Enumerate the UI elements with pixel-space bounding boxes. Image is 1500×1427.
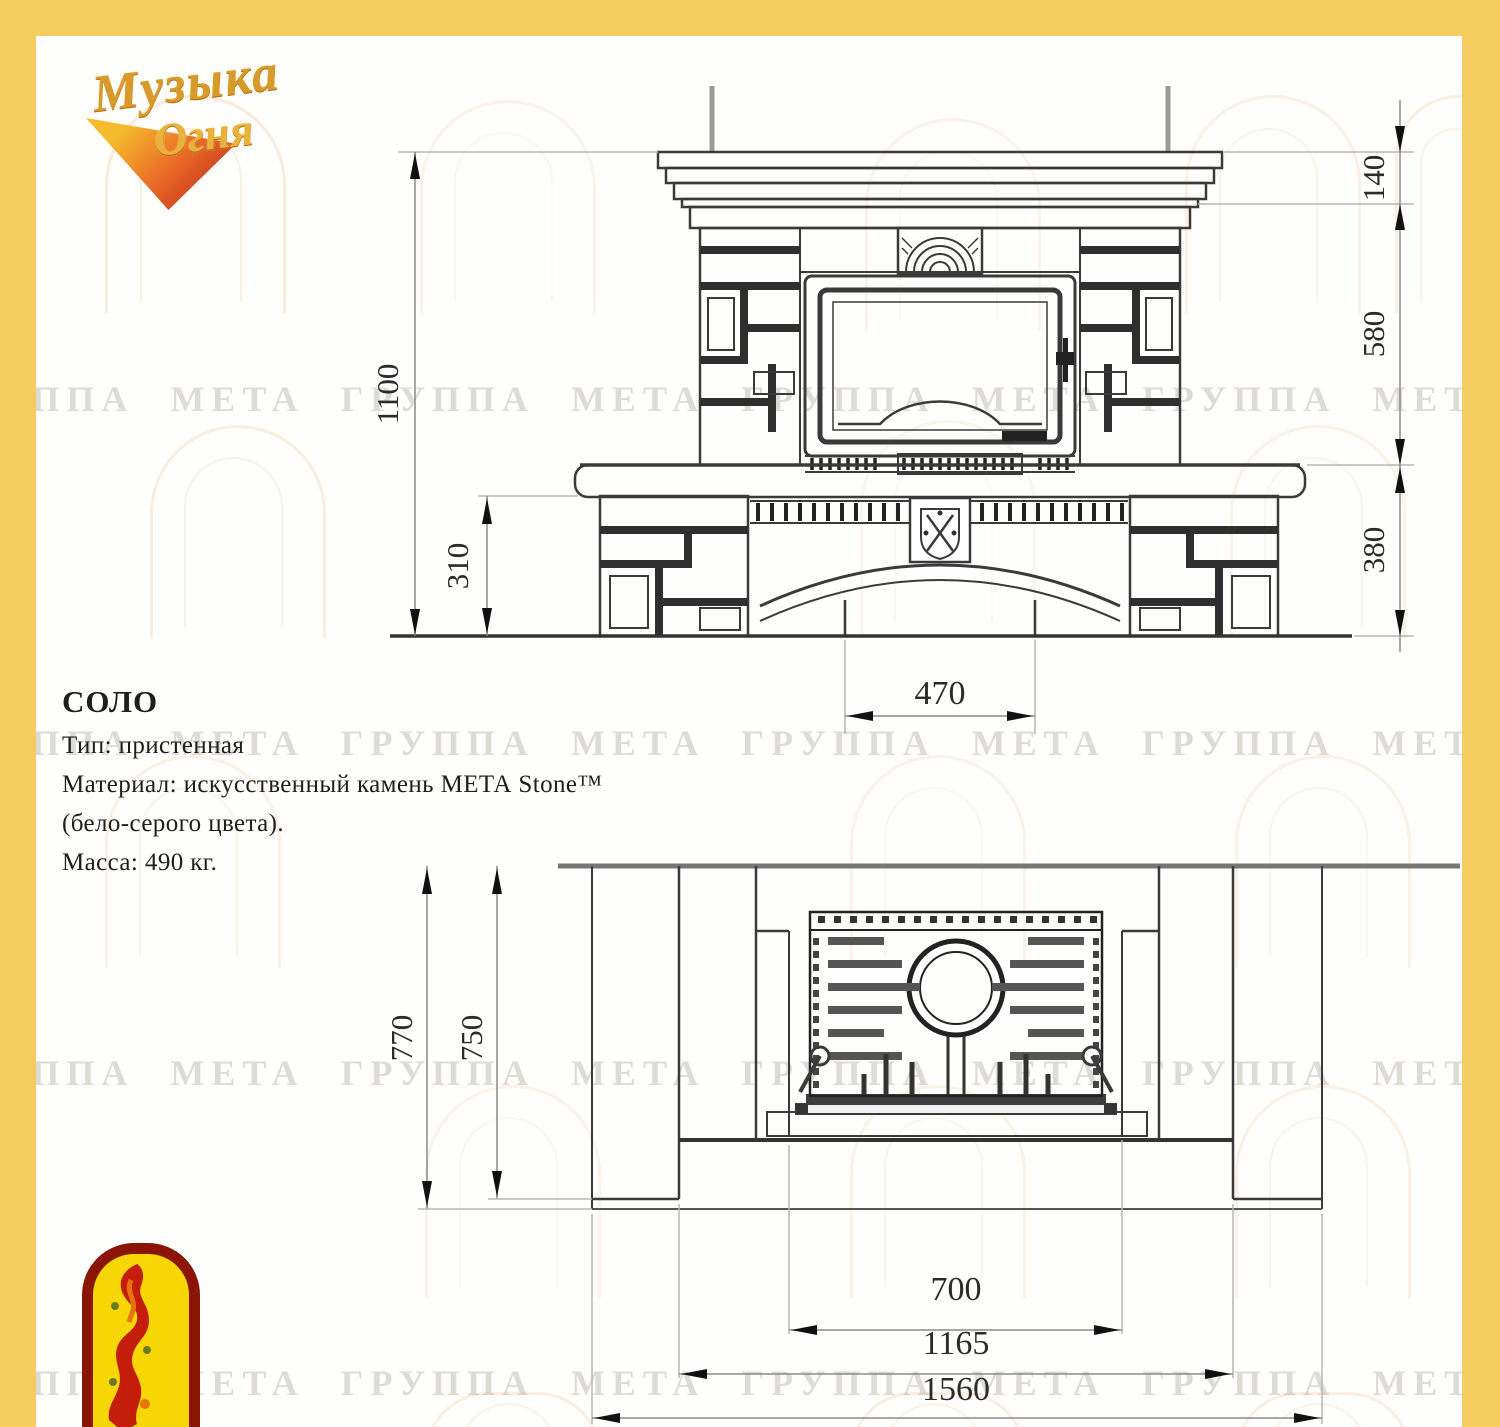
pilaster-right [1080, 246, 1180, 432]
dim-label-front-opening: 470 [915, 675, 966, 712]
spec-type: Тип: пристенная [62, 732, 602, 760]
insert-ribs [828, 937, 1084, 1060]
dim-label-base: 380 [1356, 527, 1391, 574]
dim-label-bench-depth: 750 [454, 1015, 489, 1062]
spec-material-1: Материал: искусственный камень МЕТА Ston… [62, 771, 602, 799]
mantel-shelf [658, 152, 1222, 228]
product-specs: СОЛО Тип: пристенная Материал: искусстве… [62, 684, 602, 888]
page-border-top [0, 0, 1500, 36]
dim-label-hearth-height: 310 [440, 543, 475, 590]
page-border-right [1462, 0, 1500, 1427]
pilaster-left [700, 246, 800, 432]
plan-dimensions [418, 866, 1322, 1424]
keystone-ornament [898, 228, 982, 274]
hearth-step [767, 1112, 1147, 1136]
page-border-left [0, 0, 36, 1427]
spec-mass: Масса: 490 кг. [62, 849, 602, 877]
dim-label-bench-width: 1165 [923, 1325, 990, 1362]
company-logo: Музыка Огня [58, 40, 318, 220]
front-elevation-view [390, 86, 1352, 636]
dim-label-middle: 580 [1356, 311, 1391, 358]
flue-collar [909, 941, 1003, 1035]
spec-material-2: (бело-серого цвета). [62, 810, 602, 838]
product-title: СОЛО [62, 684, 602, 720]
dim-label-mantel: 140 [1356, 155, 1391, 202]
brand-emblem [910, 498, 970, 562]
dim-label-total-height: 1100 [370, 364, 405, 425]
dim-label-total-depth: 770 [384, 1015, 419, 1062]
front-dimensions [398, 100, 1414, 734]
plan-view [558, 866, 1460, 1209]
arch-emblem-logo [82, 1243, 200, 1427]
firebox-door [805, 276, 1075, 456]
page: ГРУППА МЕТА ГРУППА МЕТА ГРУППА МЕТА ГРУП… [0, 0, 1500, 1427]
logo-word-2: Огня [152, 106, 256, 164]
dim-label-plan-opening: 700 [931, 1271, 982, 1308]
dim-label-total-width: 1560 [922, 1371, 990, 1408]
log-guard-curve [838, 402, 1042, 425]
flame-figure-icon [93, 1254, 167, 1427]
firebox-insert-plan [796, 912, 1116, 1114]
